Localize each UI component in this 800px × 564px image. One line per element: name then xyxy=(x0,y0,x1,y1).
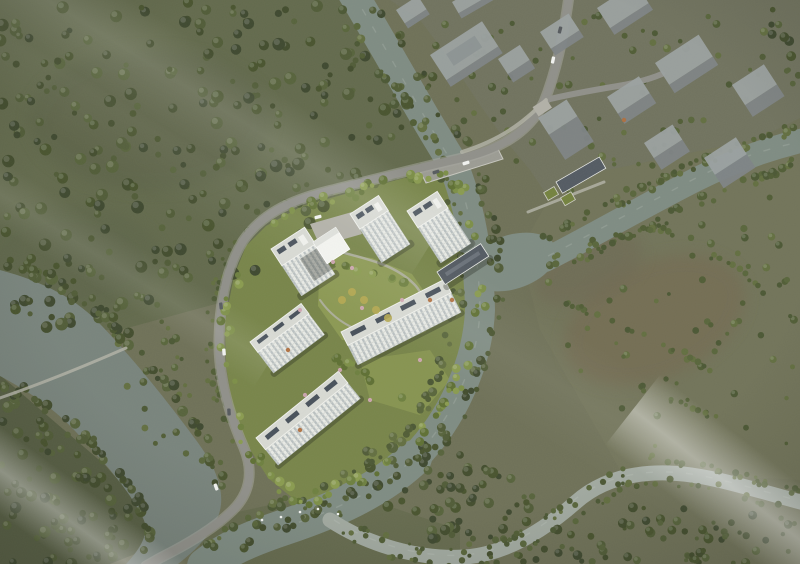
atmosphere xyxy=(0,0,800,564)
rendering-canvas: architectural-site-aerial-rendering xyxy=(0,0,800,564)
vignette xyxy=(0,0,800,564)
aerial-site-rendering: architectural-site-aerial-rendering xyxy=(0,0,800,564)
